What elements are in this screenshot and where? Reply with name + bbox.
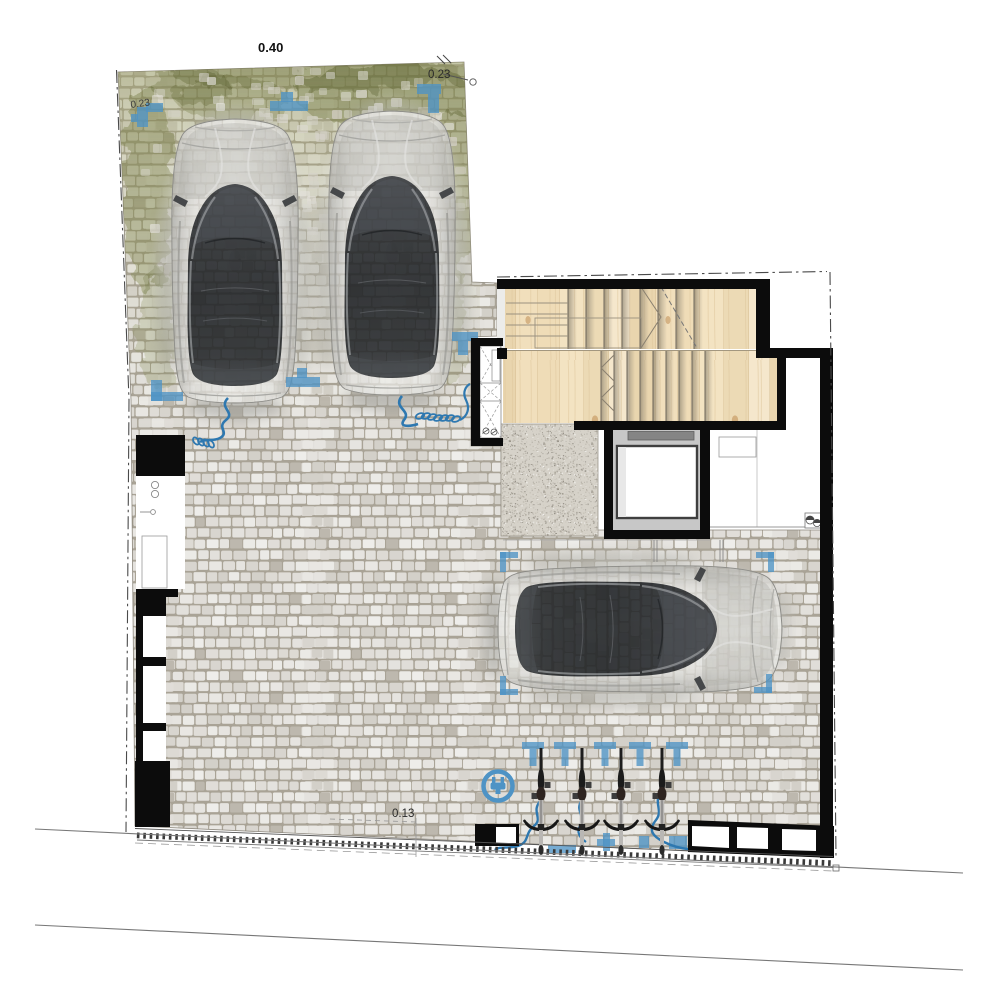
svg-text:0.13: 0.13 <box>392 808 414 820</box>
svg-text:0.40: 0.40 <box>258 40 283 55</box>
svg-text:0.23: 0.23 <box>428 69 450 81</box>
